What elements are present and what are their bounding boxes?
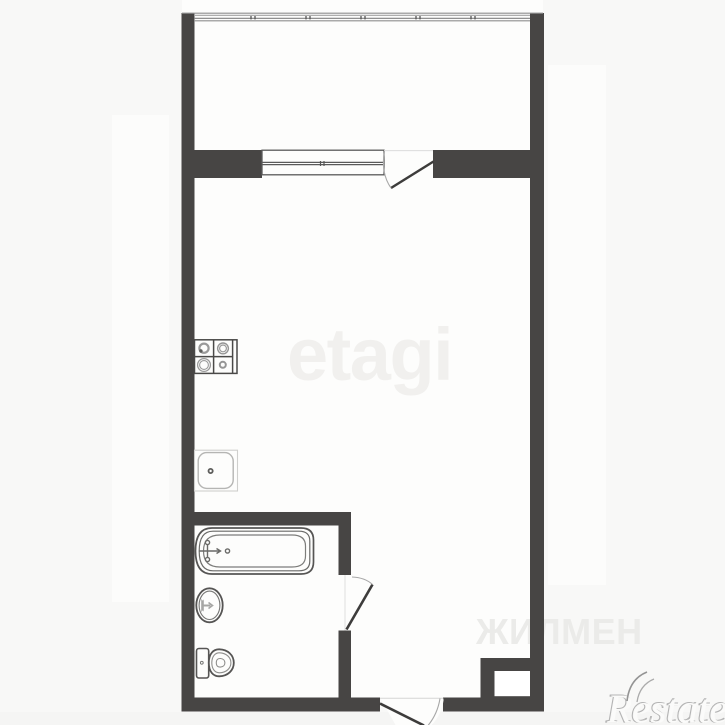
svg-text:Restate: Restate	[606, 686, 725, 725]
svg-text:ЖИЛМЕН: ЖИЛМЕН	[475, 611, 643, 652]
svg-text:etagi: etagi	[287, 313, 452, 396]
